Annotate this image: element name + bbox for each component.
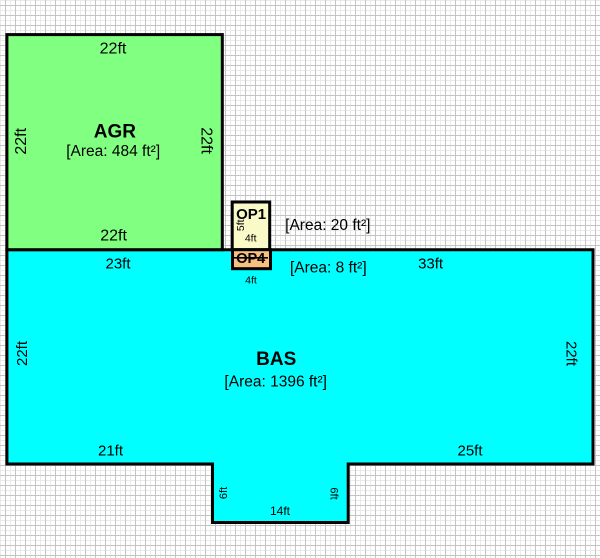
svg-text:22ft: 22ft	[100, 228, 127, 245]
svg-text:14ft: 14ft	[270, 504, 291, 518]
svg-text:BAS: BAS	[256, 349, 296, 370]
svg-text:22ft: 22ft	[198, 127, 215, 154]
svg-text:OP4: OP4	[236, 251, 265, 267]
svg-text:21ft: 21ft	[98, 442, 124, 459]
svg-text:[Area: 8 ft²]: [Area: 8 ft²]	[290, 260, 367, 277]
svg-text:[Area: 1396 ft²]: [Area: 1396 ft²]	[224, 373, 327, 390]
svg-text:6ft: 6ft	[328, 487, 340, 499]
svg-text:4ft: 4ft	[245, 274, 257, 286]
svg-text:4ft: 4ft	[245, 232, 257, 244]
svg-text:6ft: 6ft	[218, 487, 230, 499]
svg-text:AGR: AGR	[94, 122, 137, 143]
svg-text:22ft: 22ft	[100, 41, 127, 58]
svg-text:[Area: 20 ft²]: [Area: 20 ft²]	[285, 217, 370, 234]
svg-text:25ft: 25ft	[457, 442, 483, 459]
svg-text:33ft: 33ft	[418, 255, 444, 272]
svg-text:23ft: 23ft	[105, 256, 131, 273]
svg-text:22ft: 22ft	[13, 127, 30, 154]
svg-text:22ft: 22ft	[14, 340, 31, 366]
svg-text:5ft: 5ft	[235, 219, 247, 231]
svg-text:22ft: 22ft	[563, 341, 580, 367]
svg-text:[Area: 484 ft²]: [Area: 484 ft²]	[66, 143, 160, 160]
